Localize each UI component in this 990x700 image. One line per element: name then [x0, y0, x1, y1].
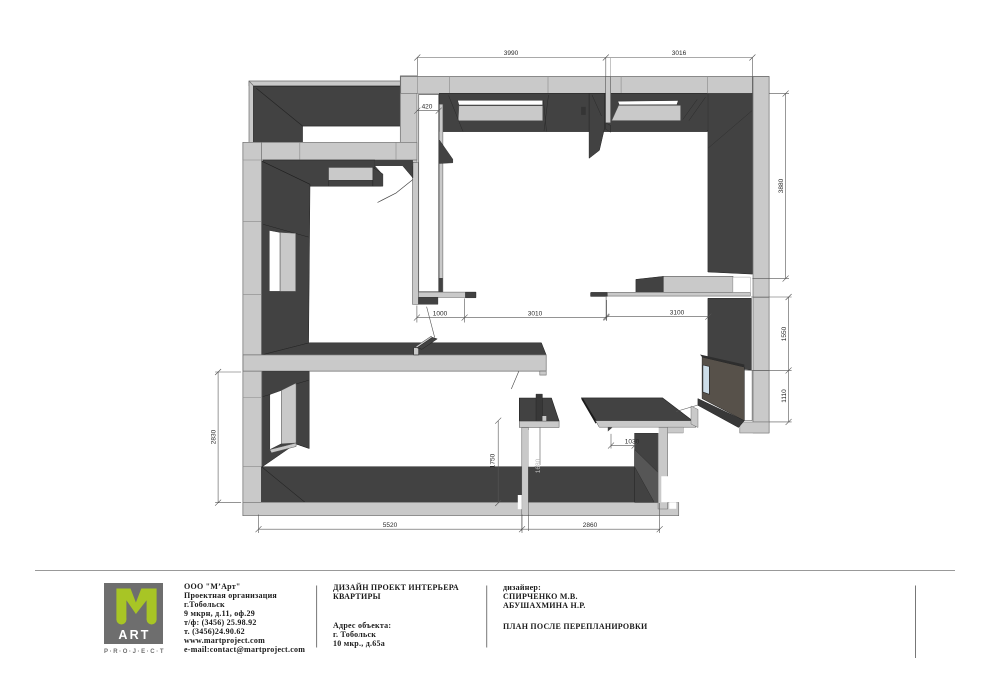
- svg-text:1750: 1750: [490, 453, 497, 468]
- svg-text:Проектная организация: Проектная организация: [184, 591, 277, 600]
- svg-text:2860: 2860: [583, 522, 598, 529]
- svg-text:3880: 3880: [778, 178, 785, 193]
- svg-text:ПЛАН ПОСЛЕ ПЕРЕПЛАНИРОВКИ: ПЛАН ПОСЛЕ ПЕРЕПЛАНИРОВКИ: [503, 622, 648, 631]
- svg-text:e-mail:contact@martproject.com: e-mail:contact@martproject.com: [184, 645, 305, 654]
- svg-text:КВАРТИРЫ: КВАРТИРЫ: [333, 592, 381, 601]
- svg-text:9 мкрн, д.11, оф.29: 9 мкрн, д.11, оф.29: [184, 609, 255, 618]
- svg-text:ART: ART: [118, 628, 150, 642]
- svg-text:АБУШАХМИНА Н.Р.: АБУШАХМИНА Н.Р.: [503, 601, 586, 610]
- svg-text:дизайнер:: дизайнер:: [503, 583, 541, 592]
- svg-text:1030: 1030: [625, 439, 640, 446]
- svg-text:т/ф: (3456) 25.98.92: т/ф: (3456) 25.98.92: [184, 618, 257, 627]
- svg-text:P·R·O·J·E·C·T: P·R·O·J·E·C·T: [104, 649, 164, 655]
- svg-text:2830: 2830: [211, 429, 218, 444]
- svg-text:1680: 1680: [535, 458, 542, 473]
- svg-text:1000: 1000: [433, 311, 448, 318]
- svg-text:www.martproject.com: www.martproject.com: [184, 636, 265, 645]
- svg-text:г. Тобольск: г. Тобольск: [333, 630, 376, 639]
- svg-text:ДИЗАЙН ПРОЕКТ ИНТЕРЬЕРА: ДИЗАЙН ПРОЕКТ ИНТЕРЬЕРА: [333, 583, 459, 592]
- svg-text:Адрес объекта:: Адрес объекта:: [333, 621, 391, 630]
- svg-text:3010: 3010: [528, 311, 543, 318]
- svg-text:3016: 3016: [672, 50, 687, 57]
- svg-text:г.Тобольск: г.Тобольск: [184, 600, 225, 609]
- svg-text:ООО "МʼАрт": ООО "МʼАрт": [184, 582, 241, 591]
- svg-text:1550: 1550: [781, 326, 788, 341]
- svg-text:5520: 5520: [383, 522, 398, 529]
- svg-text:10 мкр., д.65а: 10 мкр., д.65а: [333, 639, 385, 648]
- svg-text:СПИРЧЕНКО М.В.: СПИРЧЕНКО М.В.: [503, 592, 578, 601]
- svg-text:т. (3456)24.90.62: т. (3456)24.90.62: [184, 627, 245, 636]
- svg-text:420: 420: [422, 104, 433, 111]
- svg-text:3990: 3990: [504, 50, 519, 57]
- svg-text:3100: 3100: [670, 310, 685, 317]
- svg-text:1110: 1110: [781, 389, 788, 403]
